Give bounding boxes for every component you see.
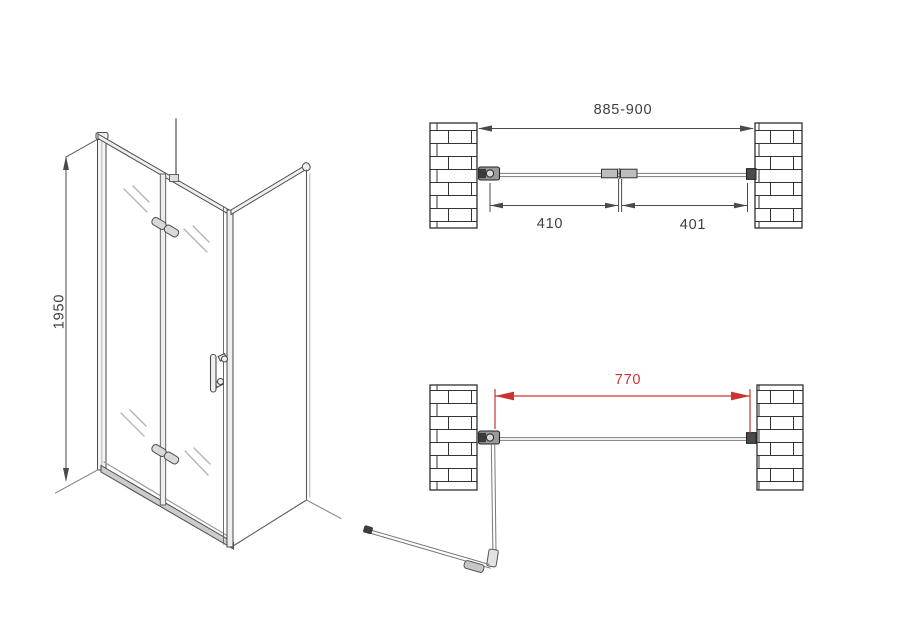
brick-wall-right [757,385,803,490]
opening-width-dimension-label: 770 [588,372,668,389]
fixed-panel-width-dimension-label: 401 [653,217,733,234]
plan-view-open [363,385,803,573]
wall-clamp-icon [747,433,757,444]
brick-wall-right [755,123,802,228]
fixed-panel-dimension [619,179,748,212]
overall-width-dimension-label: 885-900 [563,102,683,119]
technical-drawing [0,0,900,636]
wall-clamp-icon [747,169,757,180]
opening-width-dimension [495,389,750,433]
wall-hinge-icon [479,431,500,444]
drawing-canvas: 1950 885-900 410 401 770 [0,0,900,636]
corner-post [227,210,233,547]
wall-hinge-icon [479,167,500,180]
height-dimension-label: 1950 [52,282,69,342]
brick-wall-left [430,385,477,490]
floor-lines [56,470,342,519]
plan-view-closed [430,123,802,228]
front-view [56,119,342,549]
overall-width-dimension [478,125,754,131]
center-hinge-plates-icon [602,168,638,179]
post-top-connector [170,175,179,182]
door-panel-width-dimension-label: 410 [510,216,590,233]
left-wall-profile [96,133,108,471]
side-panel [231,162,311,547]
door-panel-dimension [490,183,618,212]
glass-panel-line [499,438,748,441]
door-handle-icon [211,354,228,392]
brick-wall-left [430,123,477,228]
bottom-rail [101,462,234,549]
